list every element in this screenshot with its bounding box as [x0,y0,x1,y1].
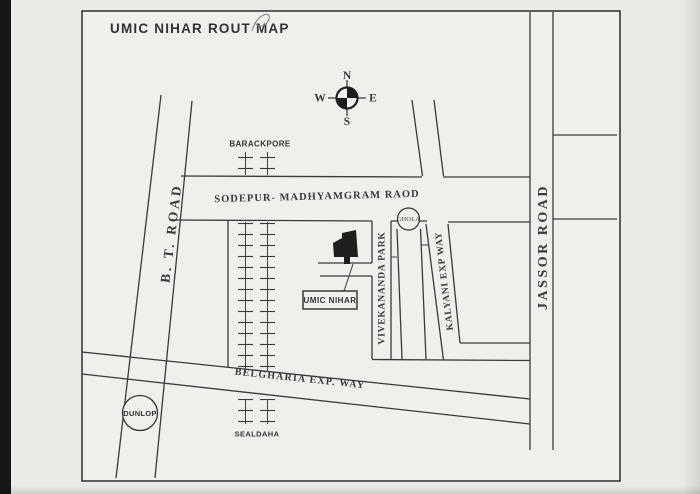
sealdaha-station-label: SEALDAHA [235,430,280,439]
ghola-landmark: GHOLA [397,208,421,230]
barackpore-station-label: BARACKPORE [229,140,291,149]
dunlop-landmark: DUNLOP [123,396,158,431]
umic-nihar-callout: UMIC NIHAR [303,291,357,309]
ghola-label: GHOLA [397,216,421,223]
compass-south-label: S [344,116,350,128]
scan-shadow-right [682,0,700,494]
scan-shadow-bottom [0,486,700,494]
scanned-route-map-page: UMIC NIHAR ROUT MAP N S W E BELGHARIA EX… [0,0,700,494]
dunlop-label: DUNLOP [123,409,156,418]
map-title: UMIC NIHAR ROUT MAP [110,21,290,36]
compass-north-label: N [343,70,352,82]
jassor-road-label: JASSOR ROAD [536,184,551,310]
vivekananda-road-label: VIVEKANANDA PARK [378,231,388,344]
compass-west-label: W [314,93,326,105]
umic-nihar-label: UMIC NIHAR [304,296,357,305]
route-map-canvas: UMIC NIHAR ROUT MAP N S W E BELGHARIA EX… [0,0,700,494]
compass-east-label: E [369,93,377,105]
